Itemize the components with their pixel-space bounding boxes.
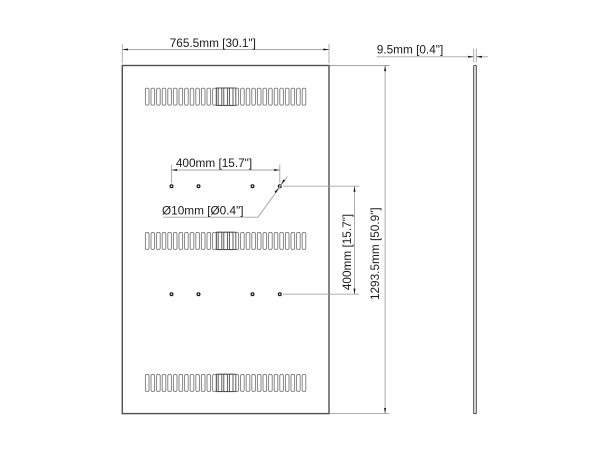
svg-text:9.5mm [0.4"]: 9.5mm [0.4"] xyxy=(377,42,443,56)
svg-text:400mm [15.7"]: 400mm [15.7"] xyxy=(176,156,252,170)
svg-text:1293.5mm [50.9"]: 1293.5mm [50.9"] xyxy=(368,207,382,300)
svg-text:765.5mm [30.1"]: 765.5mm [30.1"] xyxy=(170,36,256,50)
svg-text:400mm [15.7"]: 400mm [15.7"] xyxy=(340,214,354,290)
svg-text:Ø10mm [Ø0.4"]: Ø10mm [Ø0.4"] xyxy=(162,204,244,218)
